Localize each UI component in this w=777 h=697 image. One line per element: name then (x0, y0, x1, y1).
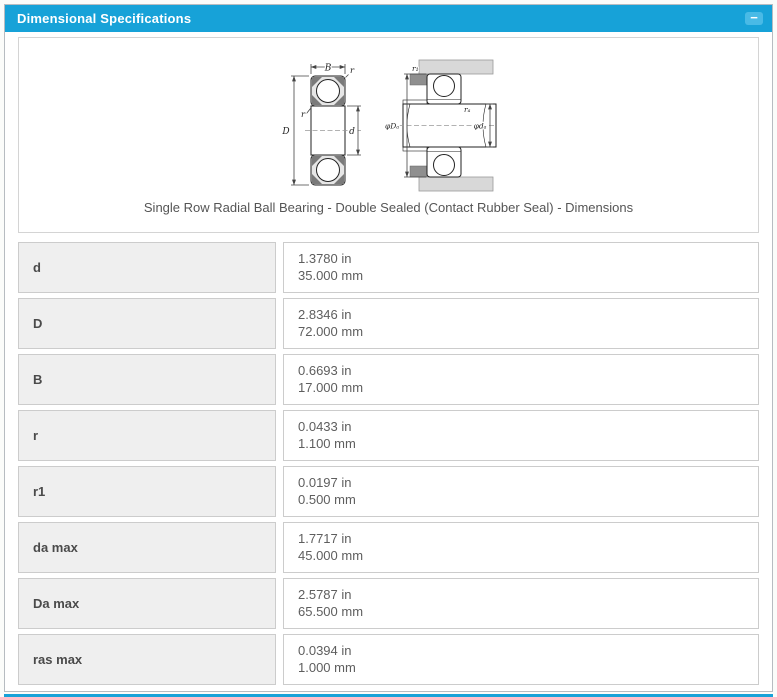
spec-label-cell: d (18, 242, 276, 293)
bearing-diagram-image: B D (281, 58, 497, 193)
spec-value-cell: 1.3780 in 35.000 mm (283, 242, 759, 293)
spec-label-cell: D (18, 298, 276, 349)
dim-label-da: φdₐ (473, 122, 486, 131)
dim-label-r-outer: r (350, 66, 355, 76)
figure-caption: Single Row Radial Ball Bearing - Double … (144, 200, 633, 215)
value-inch: 1.7717 in (298, 530, 744, 547)
value-inch: 2.8346 in (298, 306, 744, 323)
dim-label-D: D (281, 127, 289, 137)
spec-table: d 1.3780 in 35.000 mm D 2.8346 in 72.000… (18, 242, 759, 685)
dim-label-r-inner: r (301, 110, 306, 120)
spec-value-cell: 0.6693 in 17.000 mm (283, 354, 759, 405)
spec-value-cell: 2.8346 in 72.000 mm (283, 298, 759, 349)
spec-label-cell: r1 (18, 466, 276, 517)
value-mm: 1.000 mm (298, 659, 744, 676)
table-row: r1 0.0197 in 0.500 mm (18, 466, 759, 517)
table-row: B 0.6693 in 17.000 mm (18, 354, 759, 405)
value-inch: 1.3780 in (298, 250, 744, 267)
spec-label-cell: ras max (18, 634, 276, 685)
value-inch: 0.6693 in (298, 362, 744, 379)
dim-label-Da: φDₐ (384, 122, 398, 131)
value-inch: 0.0394 in (298, 642, 744, 659)
spec-label-cell: B (18, 354, 276, 405)
collapse-minus-icon[interactable]: − (745, 12, 763, 25)
value-inch: 0.0197 in (298, 474, 744, 491)
spec-label-cell: Da max (18, 578, 276, 629)
dim-label-ra: rₐ (464, 105, 471, 114)
page: Dimensional Specifications − B (0, 0, 777, 697)
value-inch: 0.0433 in (298, 418, 744, 435)
value-mm: 17.000 mm (298, 379, 744, 396)
value-mm: 72.000 mm (298, 323, 744, 340)
dim-label-d: d (349, 127, 355, 137)
value-mm: 65.500 mm (298, 603, 744, 620)
table-row: d 1.3780 in 35.000 mm (18, 242, 759, 293)
bearing-figure: B D (18, 37, 759, 233)
table-row: ras max 0.0394 in 1.000 mm (18, 634, 759, 685)
panel-title: Dimensional Specifications (17, 11, 191, 26)
dim-label-B: B (323, 64, 331, 74)
panel-body: B D (5, 32, 772, 691)
spec-label-cell: r (18, 410, 276, 461)
value-mm: 1.100 mm (298, 435, 744, 452)
spec-value-cell: 0.0394 in 1.000 mm (283, 634, 759, 685)
value-inch: 2.5787 in (298, 586, 744, 603)
spec-label-cell: da max (18, 522, 276, 573)
spec-value-cell: 1.7717 in 45.000 mm (283, 522, 759, 573)
table-row: da max 1.7717 in 45.000 mm (18, 522, 759, 573)
table-row: D 2.8346 in 72.000 mm (18, 298, 759, 349)
spec-value-cell: 2.5787 in 65.500 mm (283, 578, 759, 629)
panel-header[interactable]: Dimensional Specifications − (5, 5, 772, 32)
dimensional-specifications-panel: Dimensional Specifications − B (4, 4, 773, 692)
table-row: r 0.0433 in 1.100 mm (18, 410, 759, 461)
value-mm: 45.000 mm (298, 547, 744, 564)
spec-value-cell: 0.0433 in 1.100 mm (283, 410, 759, 461)
table-row: Da max 2.5787 in 65.500 mm (18, 578, 759, 629)
spec-value-cell: 0.0197 in 0.500 mm (283, 466, 759, 517)
value-mm: 35.000 mm (298, 267, 744, 284)
dim-label-r1: r₁ (412, 64, 419, 73)
value-mm: 0.500 mm (298, 491, 744, 508)
